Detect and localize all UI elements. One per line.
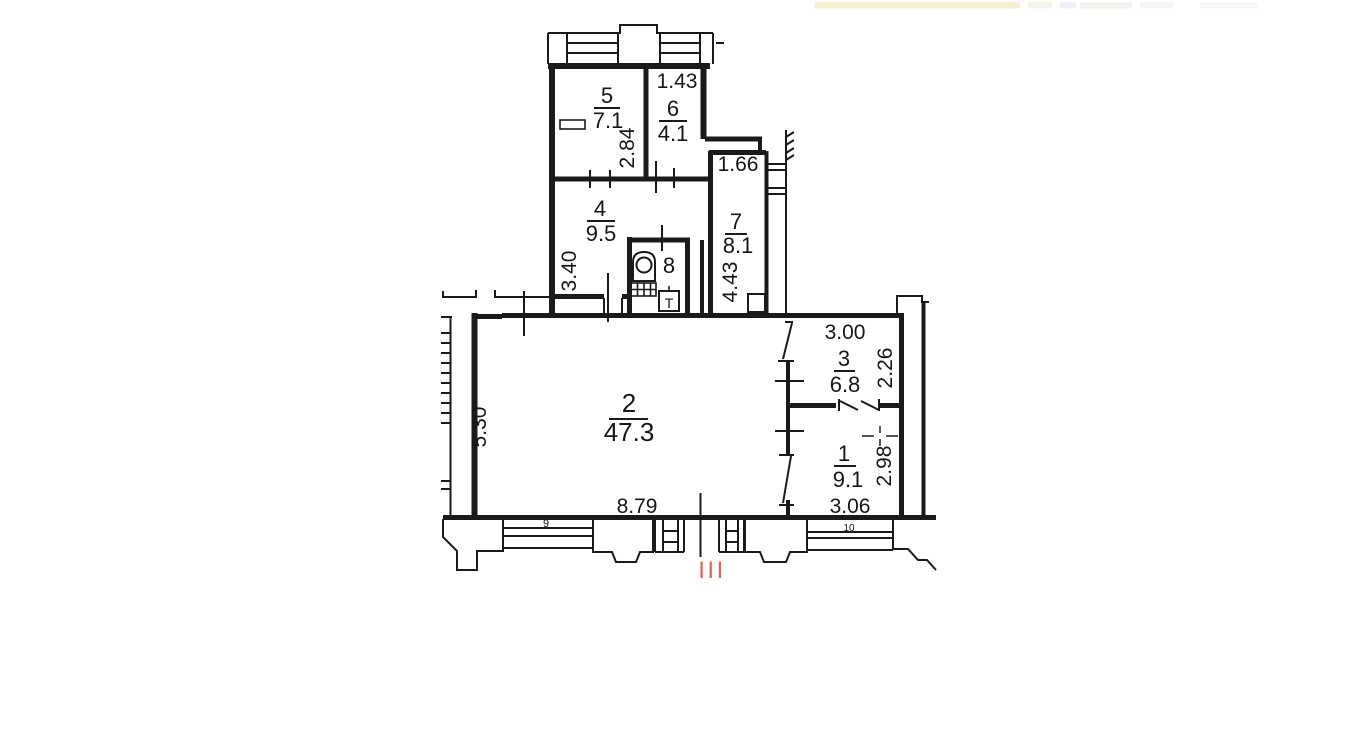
dim-room3-width: 3.00 xyxy=(825,321,866,344)
facade-window-9-label: 9 xyxy=(543,518,549,530)
room-3-area: 6.8 xyxy=(830,372,861,397)
bottom-facade xyxy=(443,519,936,570)
room-label-6: 1.43 6 4.1 2.84 xyxy=(616,70,697,168)
interior-walls xyxy=(443,66,936,518)
room-label-2: 2 47.3 5.30 8.79 xyxy=(468,388,657,518)
room-8-number: 8 xyxy=(663,253,675,278)
dim-room7-width: 1.66 xyxy=(718,153,759,176)
dim-room3-depth: 2.26 xyxy=(874,348,897,389)
room-2-number: 2 xyxy=(622,388,636,418)
stub-walls xyxy=(443,290,549,298)
dim-room6-depth: 2.84 xyxy=(616,127,639,168)
room-7-area: 8.1 xyxy=(723,233,754,258)
room-4-area: 9.5 xyxy=(586,221,617,246)
dim-room6-width: 1.43 xyxy=(657,70,698,93)
water-heater-label: T xyxy=(665,295,674,311)
dim-room7-depth: 4.43 xyxy=(719,262,742,303)
dim-room1-width: 3.06 xyxy=(830,495,871,518)
dim-room1-depth: 2.98 xyxy=(873,446,896,487)
room-7-number: 7 xyxy=(730,209,742,234)
dim-room2-depth: 5.30 xyxy=(468,407,491,448)
room-1-area: 9.1 xyxy=(833,467,864,492)
room-1-number: 1 xyxy=(838,441,850,466)
left-boundary-hatched xyxy=(441,317,452,517)
labels-layer: 5 7.1 1.43 6 4.1 2.84 4 9.5 3.40 1.66 7 … xyxy=(468,70,897,534)
radiator-niche xyxy=(560,120,585,129)
floor-plan-canvas[interactable]: T 5 7.1 1.43 6 4.1 2.84 4 9.5 3.40 1.66 … xyxy=(0,0,1355,742)
watermark-strip xyxy=(815,2,1258,9)
room-label-5: 5 7.1 xyxy=(593,83,624,133)
dim-room2-width: 8.79 xyxy=(617,495,658,518)
crosshair-cursor xyxy=(862,426,898,446)
facade-window-10-label: 10 xyxy=(843,523,855,534)
room-2-area: 47.3 xyxy=(604,417,655,447)
sink-grid xyxy=(631,283,656,296)
entrance-marker: III xyxy=(698,557,726,584)
door-marks xyxy=(524,161,879,557)
water-heater: T xyxy=(659,286,679,311)
floor-plan-viewer: T 5 7.1 1.43 6 4.1 2.84 4 9.5 3.40 1.66 … xyxy=(0,0,1355,742)
room-label-1: 1 9.1 2.98 3.06 xyxy=(830,441,896,518)
dim-room4-depth: 3.40 xyxy=(558,251,581,292)
toilet-bowl xyxy=(637,258,652,273)
room-6-area: 4.1 xyxy=(658,121,689,146)
room-6-number: 6 xyxy=(667,96,679,121)
room-4-number: 4 xyxy=(594,196,606,221)
room-3-number: 3 xyxy=(838,346,850,371)
top-facade xyxy=(548,25,724,64)
room-label-7: 1.66 7 8.1 4.43 xyxy=(718,153,759,302)
room-5-number: 5 xyxy=(601,83,613,108)
room-label-3: 3.00 3 6.8 2.26 xyxy=(825,321,897,397)
